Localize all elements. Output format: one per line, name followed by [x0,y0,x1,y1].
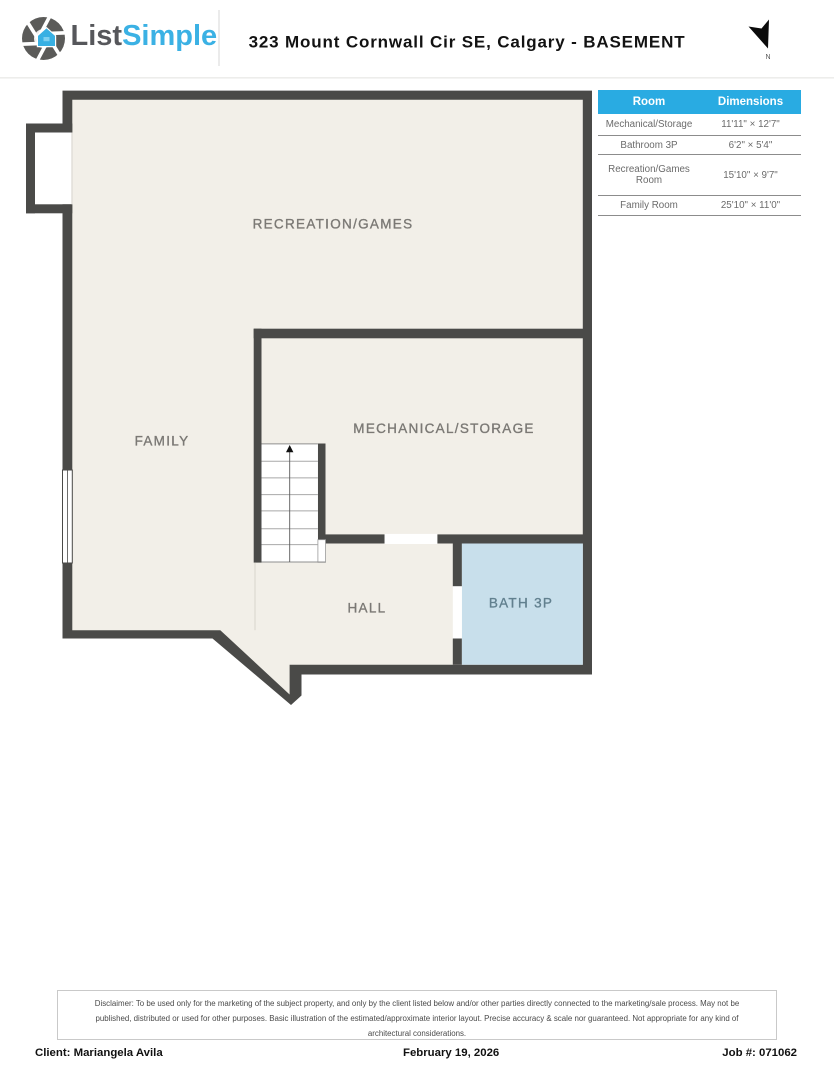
svg-text:BATH 3P: BATH 3P [489,596,553,611]
svg-text:RECREATION/GAMES: RECREATION/GAMES [253,217,414,232]
svg-text:MECHANICAL/STORAGE: MECHANICAL/STORAGE [353,421,534,436]
svg-text:HALL: HALL [348,601,387,616]
svg-text:FAMILY: FAMILY [135,434,190,449]
